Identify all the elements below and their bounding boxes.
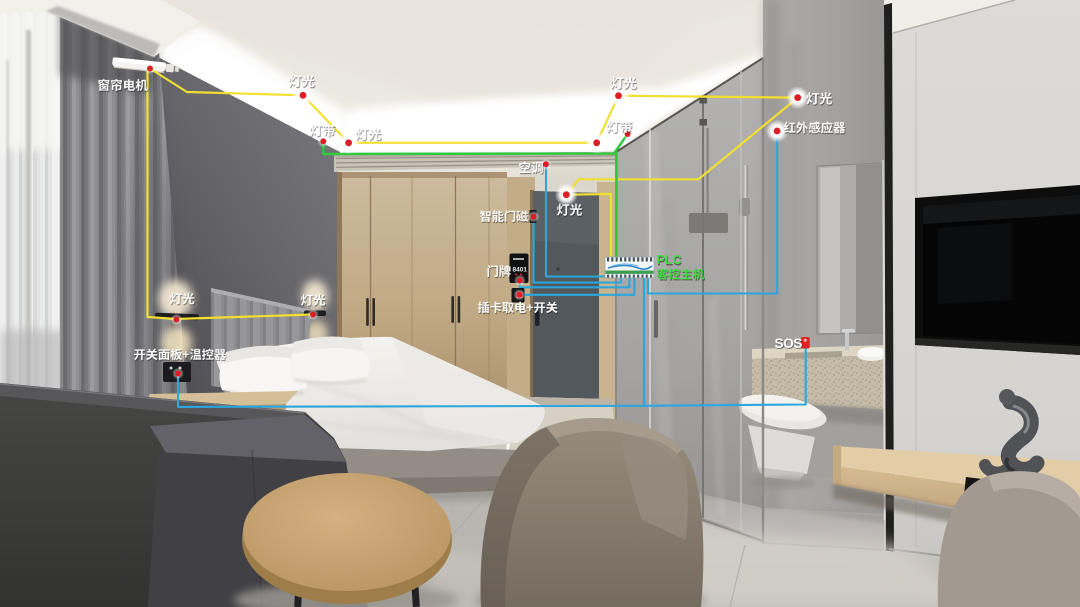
svg-text:SOS: SOS bbox=[775, 336, 803, 351]
svg-text:PLC: PLC bbox=[657, 253, 682, 267]
svg-text:8401: 8401 bbox=[513, 267, 528, 274]
